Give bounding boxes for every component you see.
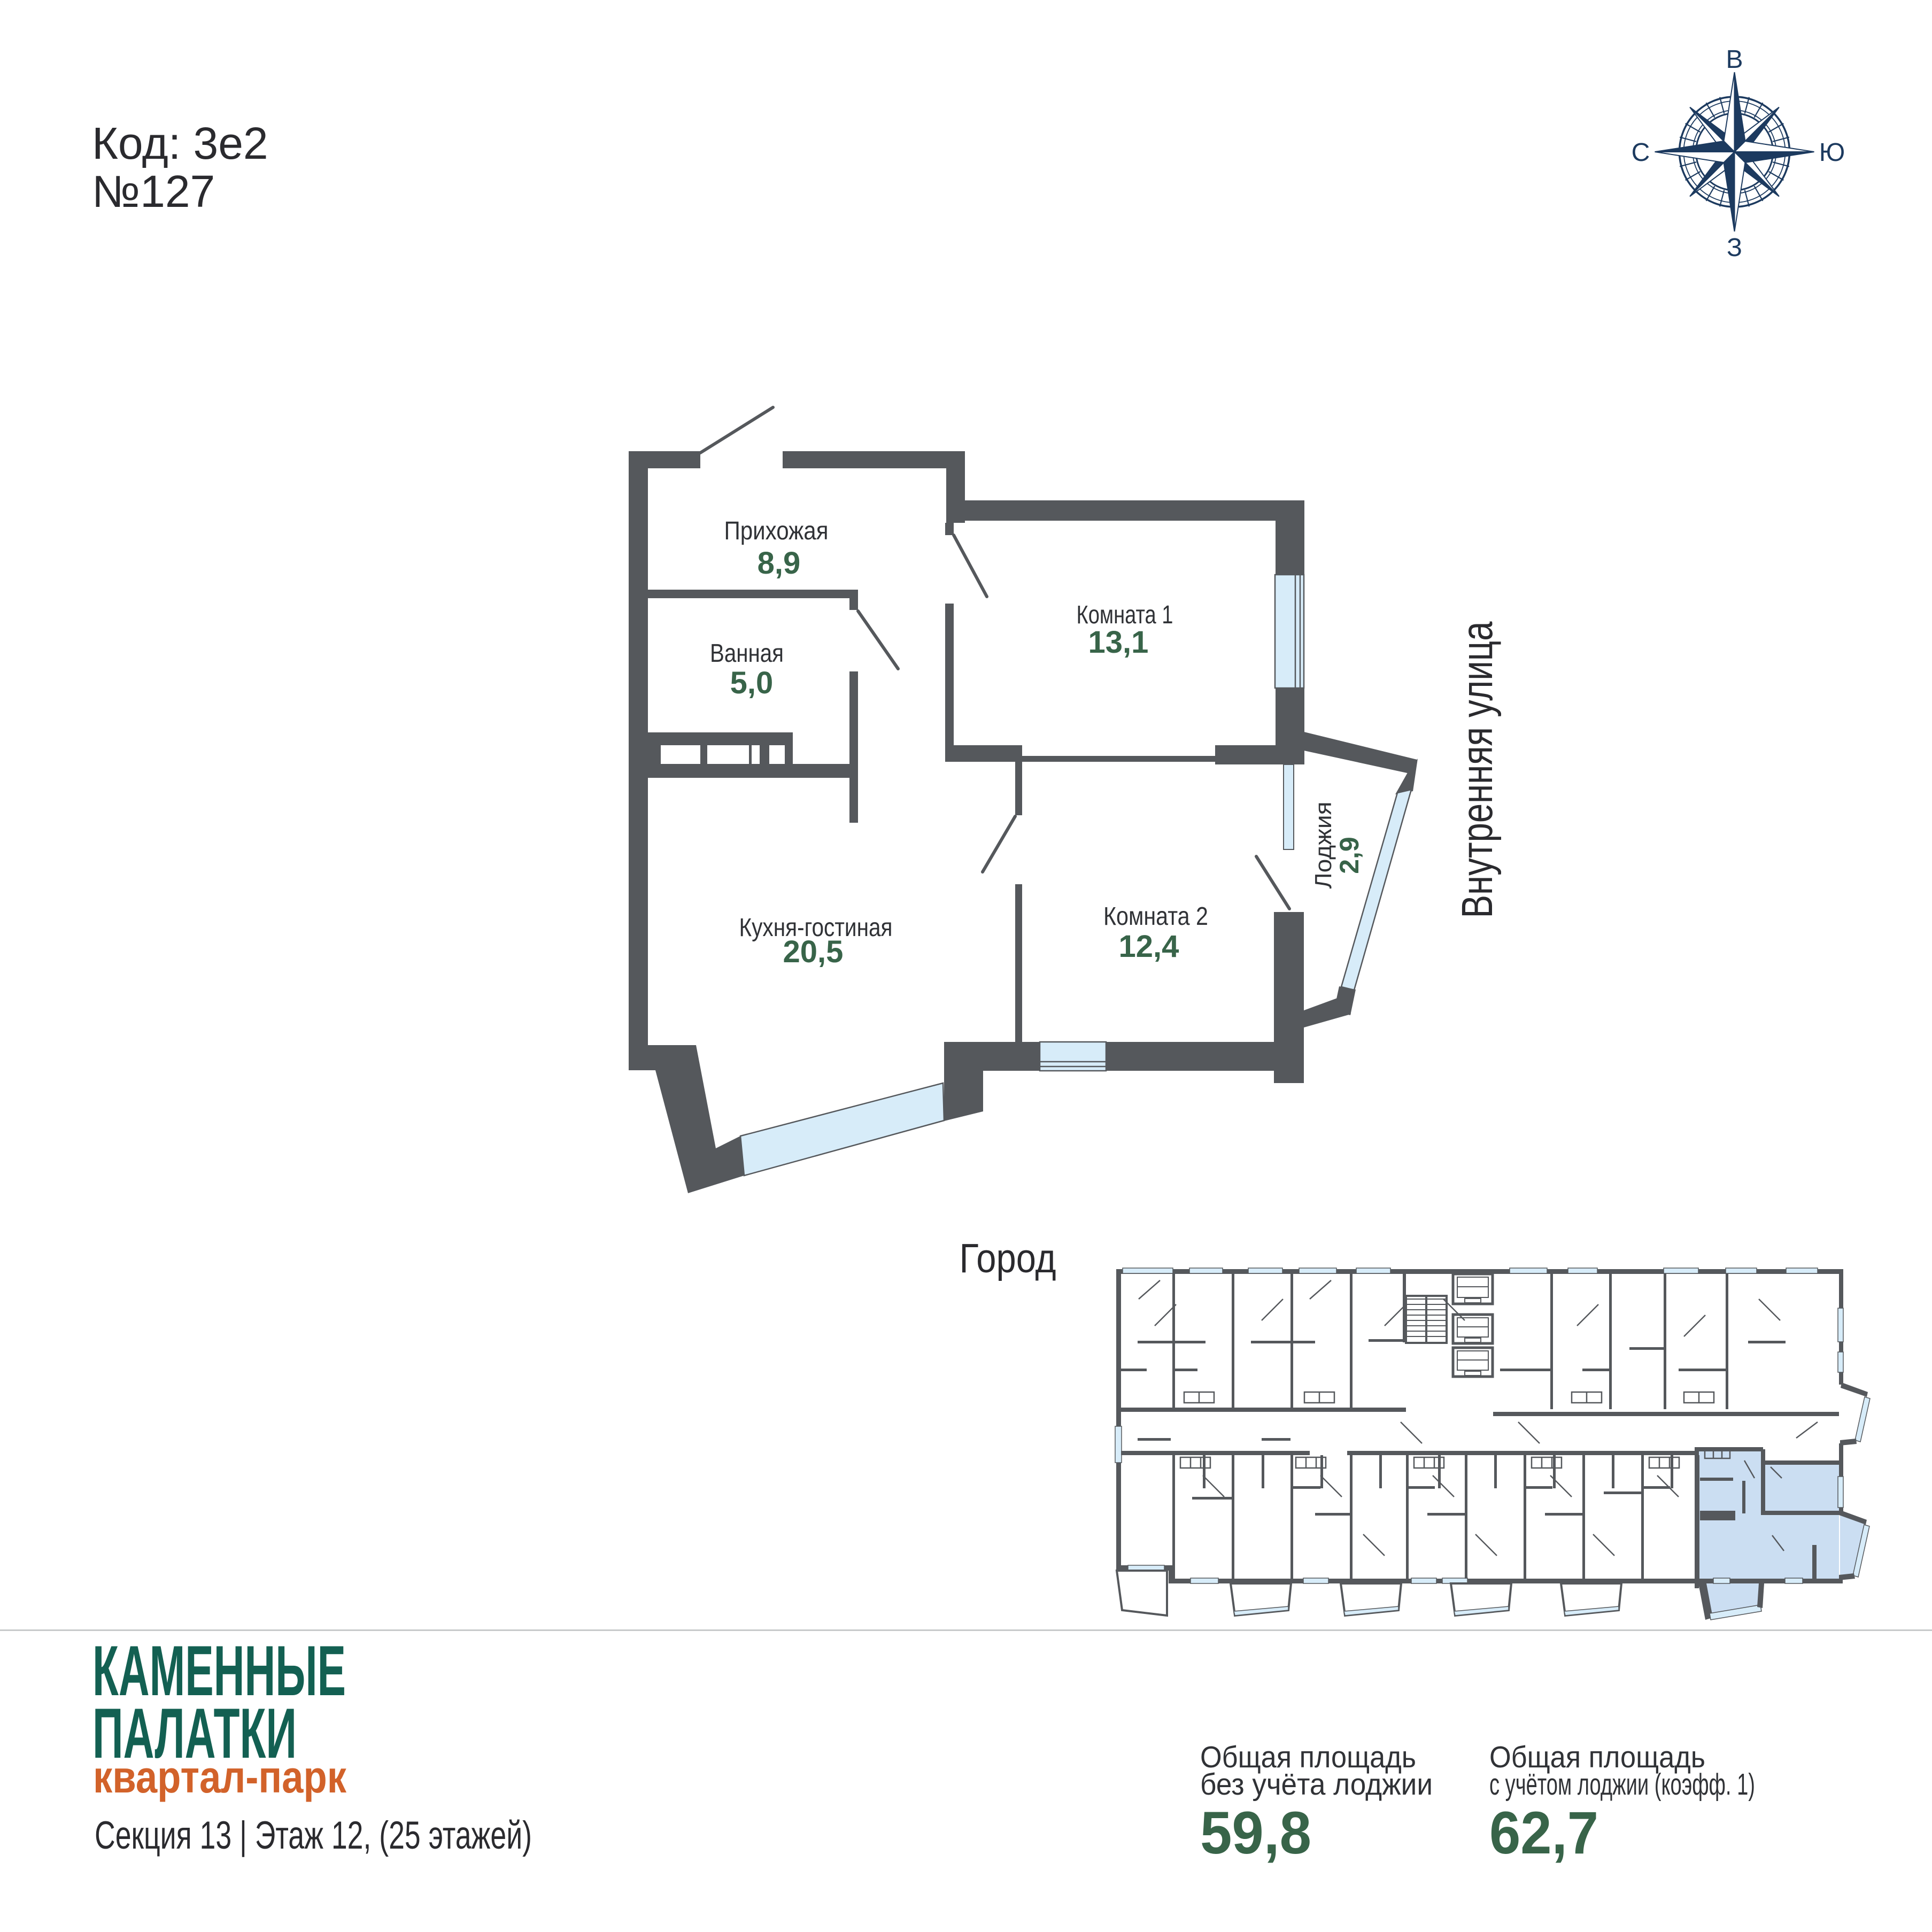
svg-text:20,5: 20,5 [783,934,844,969]
svg-text:59,8: 59,8 [1200,1799,1311,1866]
svg-text:В: В [1726,45,1743,74]
svg-text:Комната 2: Комната 2 [1103,902,1208,931]
svg-text:Ванная: Ванная [710,639,784,668]
svg-text:Секция 13 | Этаж 12, (25 этаже: Секция 13 | Этаж 12, (25 этажей) [95,1814,532,1857]
svg-text:квартал-парк: квартал-парк [93,1752,347,1802]
svg-text:З: З [1727,234,1742,262]
svg-text:без учёта лоджии: без учёта лоджии [1200,1767,1433,1802]
svg-text:с учётом лоджии (коэфф. 1): с учётом лоджии (коэфф. 1) [1489,1767,1755,1802]
svg-text:Город: Город [960,1235,1056,1281]
svg-text:Код: 3е2: Код: 3е2 [92,118,268,168]
svg-text:С: С [1632,138,1650,167]
svg-text:Прихожая: Прихожая [724,517,829,545]
svg-text:№127: №127 [92,166,215,217]
svg-text:62,7: 62,7 [1489,1799,1598,1866]
svg-text:5,0: 5,0 [730,666,774,700]
svg-text:13,1: 13,1 [1088,625,1149,660]
svg-text:8,9: 8,9 [758,546,801,581]
svg-text:Внутренняя улица: Внутренняя улица [1453,621,1502,918]
svg-text:Лоджия: Лоджия [1310,802,1336,889]
svg-text:Ю: Ю [1819,138,1845,167]
svg-text:12,4: 12,4 [1119,929,1179,964]
svg-text:2,9: 2,9 [1334,837,1364,874]
